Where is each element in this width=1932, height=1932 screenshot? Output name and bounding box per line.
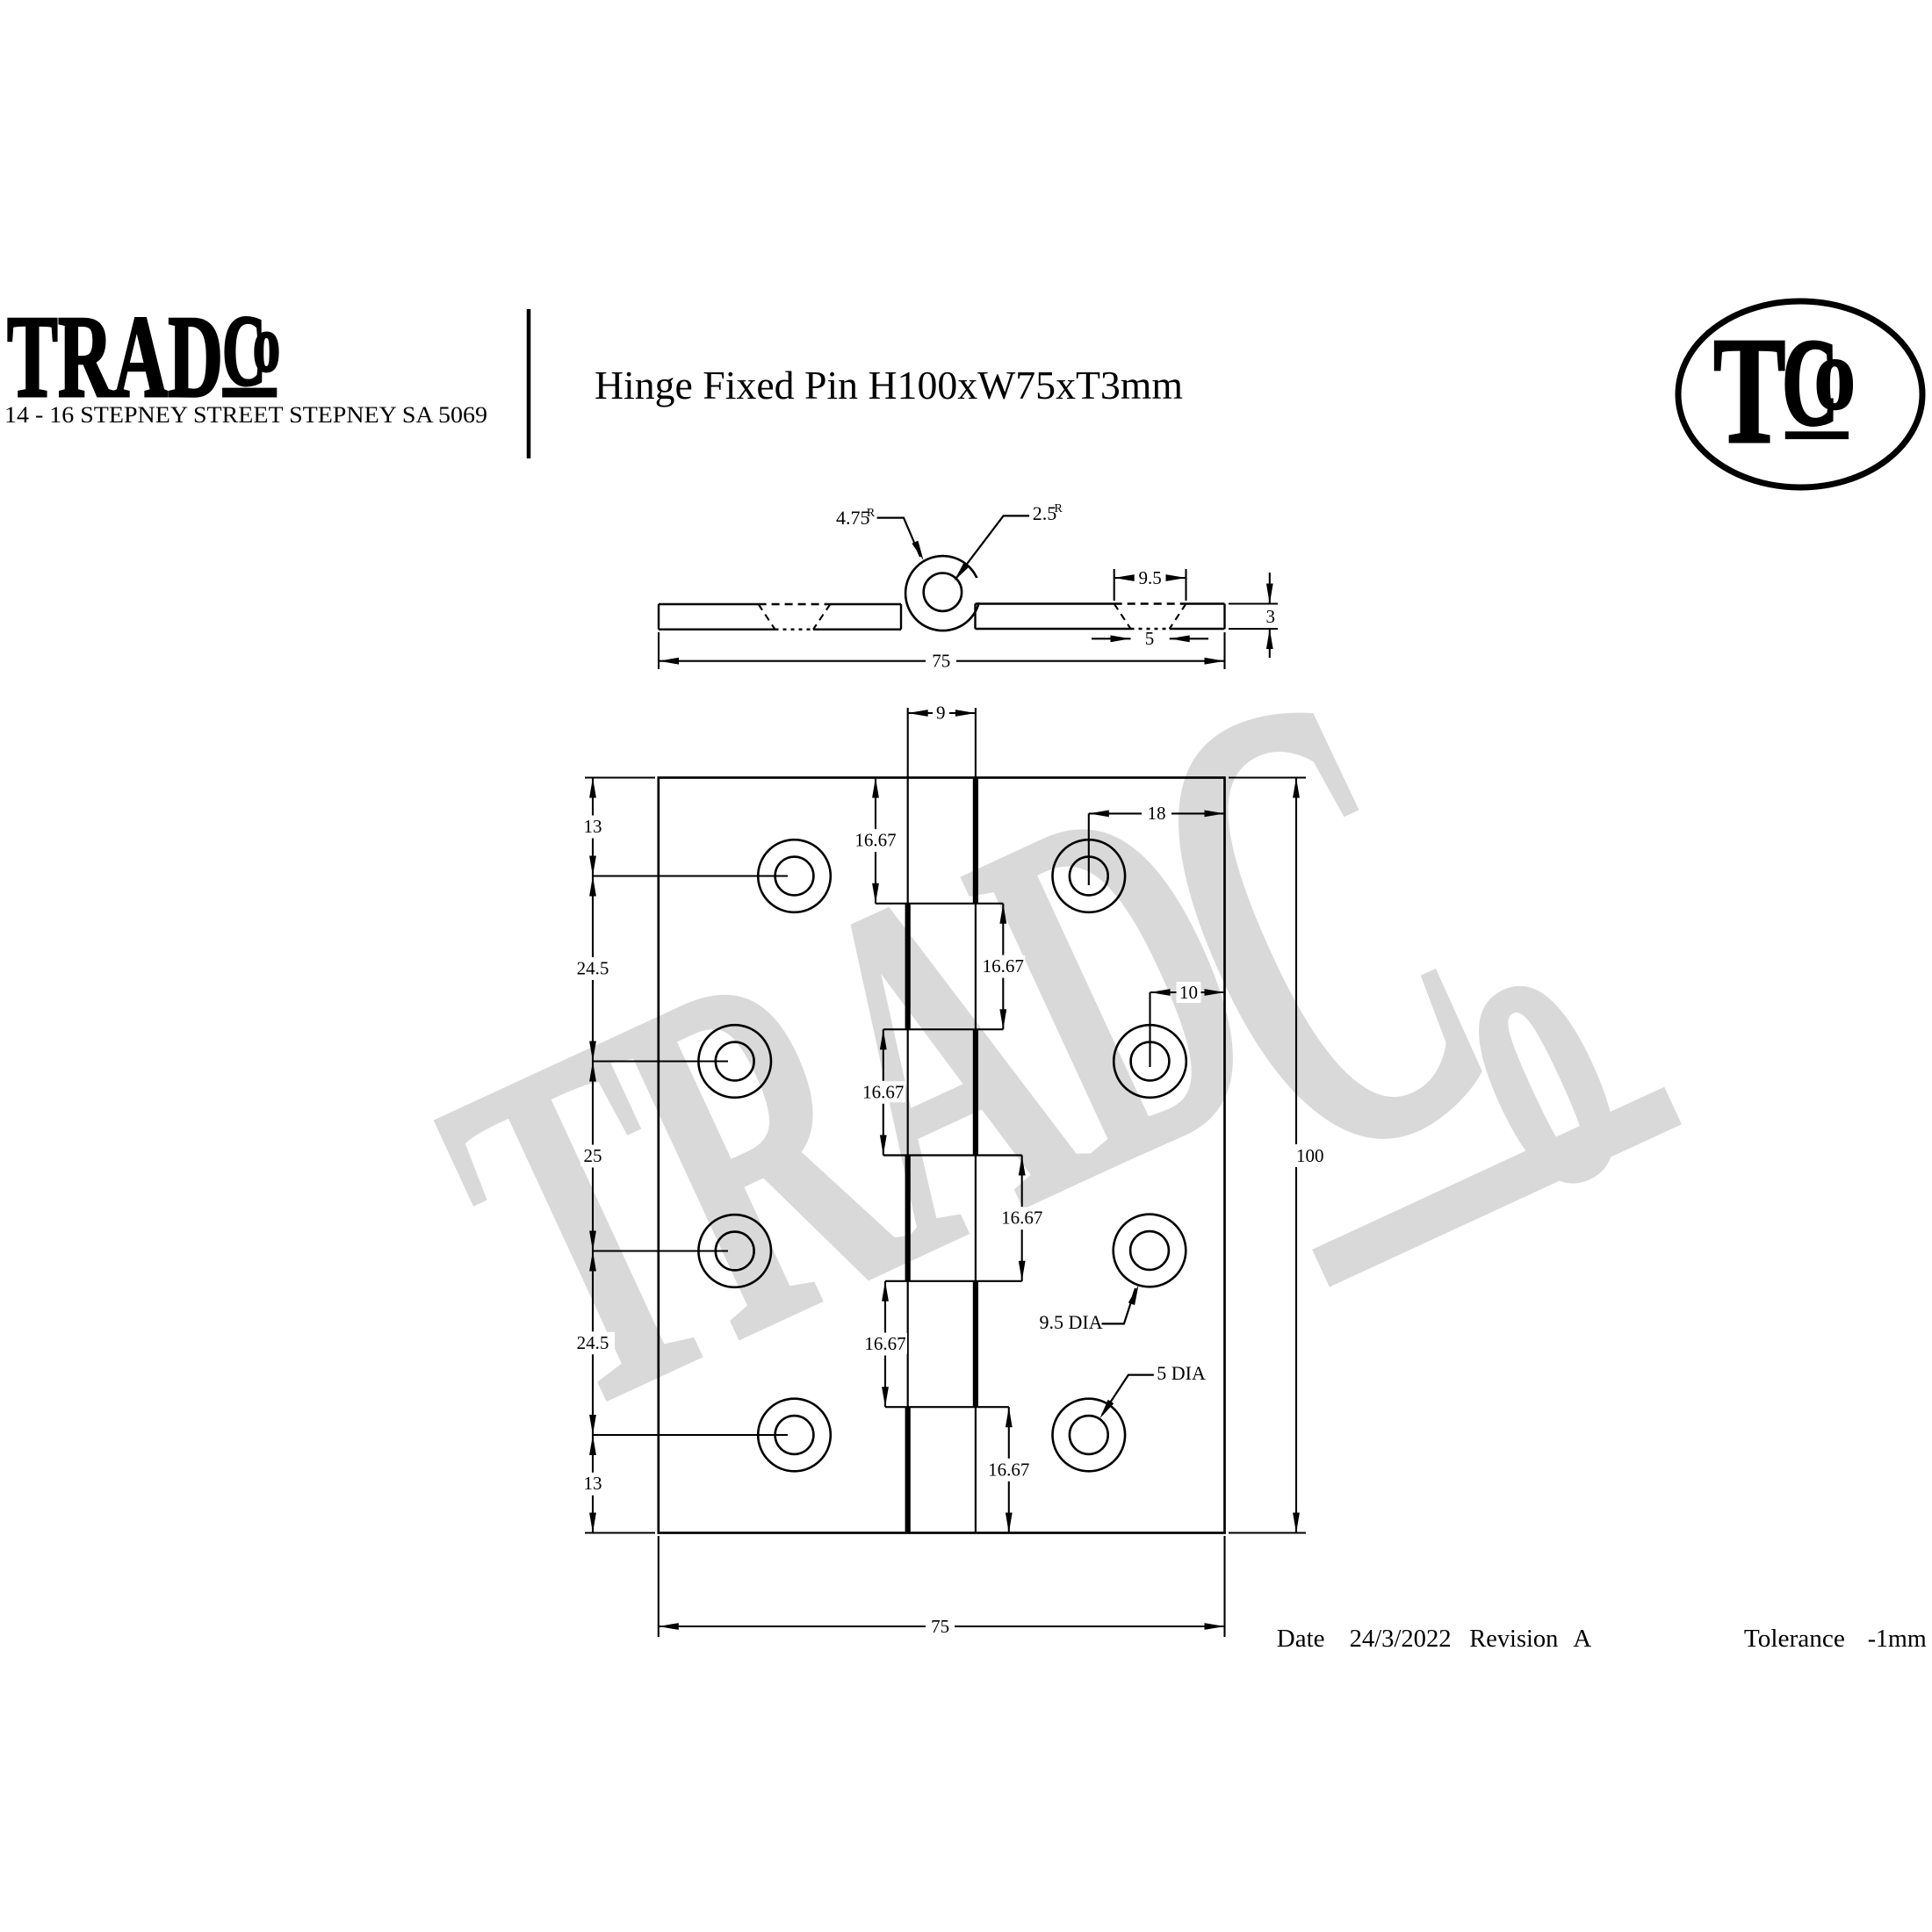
svg-text:Tolerance: Tolerance <box>1744 1625 1845 1653</box>
svg-text:16.67: 16.67 <box>1001 1207 1042 1229</box>
svg-text:2.5: 2.5 <box>1033 502 1057 524</box>
svg-text:4.75: 4.75 <box>836 507 870 529</box>
svg-text:A: A <box>1573 1625 1591 1653</box>
svg-text:13: 13 <box>584 816 602 837</box>
svg-text:25: 25 <box>584 1145 602 1166</box>
svg-text:75: 75 <box>931 1616 949 1637</box>
svg-text:100: 100 <box>1296 1145 1324 1166</box>
svg-text:9.5 DIA: 9.5 DIA <box>1040 1311 1103 1333</box>
svg-text:24.5: 24.5 <box>577 958 609 979</box>
svg-text:9: 9 <box>936 703 946 724</box>
svg-text:3: 3 <box>1266 606 1276 627</box>
svg-text:16.67: 16.67 <box>983 955 1024 977</box>
svg-text:16.67: 16.67 <box>862 1081 904 1102</box>
svg-text:75: 75 <box>932 651 950 672</box>
svg-text:o: o <box>253 299 280 388</box>
svg-text:T: T <box>1713 306 1785 475</box>
svg-text:10: 10 <box>1179 982 1198 1003</box>
svg-text:16.67: 16.67 <box>988 1459 1029 1480</box>
svg-text:R: R <box>1055 502 1063 515</box>
svg-text:Hinge Fixed Pin H100xW75xT3mm: Hinge Fixed Pin H100xW75xT3mm <box>595 363 1183 407</box>
svg-text:5 DIA: 5 DIA <box>1157 1362 1206 1384</box>
svg-text:13: 13 <box>584 1473 602 1494</box>
svg-text:24.5: 24.5 <box>577 1332 609 1353</box>
svg-text:9.5: 9.5 <box>1138 567 1161 588</box>
svg-text:-1mm: -1mm <box>1868 1625 1927 1653</box>
svg-text:14 - 16 STEPNEY STREET STEPNEY: 14 - 16 STEPNEY STREET STEPNEY SA 5069 <box>4 402 487 428</box>
svg-text:Date: Date <box>1277 1625 1325 1653</box>
svg-text:Revision: Revision <box>1469 1625 1558 1653</box>
svg-text:o: o <box>1814 319 1856 430</box>
svg-text:18: 18 <box>1148 803 1166 824</box>
svg-text:16.67: 16.67 <box>854 830 896 851</box>
svg-text:R: R <box>867 507 876 520</box>
svg-text:24/3/2022: 24/3/2022 <box>1350 1625 1452 1653</box>
svg-text:5: 5 <box>1145 628 1155 649</box>
svg-text:16.67: 16.67 <box>864 1333 905 1354</box>
